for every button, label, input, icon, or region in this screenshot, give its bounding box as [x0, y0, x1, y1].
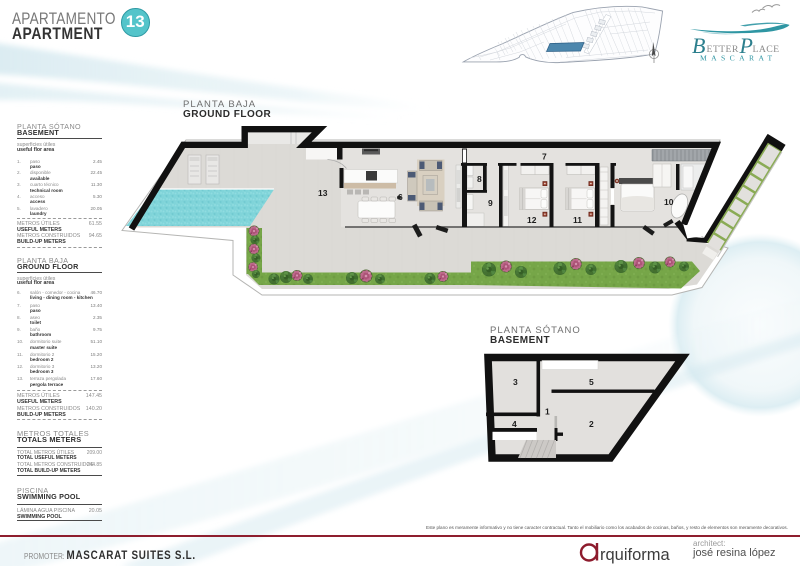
svg-text:8: 8: [477, 174, 482, 184]
svg-text:4: 4: [512, 419, 517, 429]
svg-text:11: 11: [573, 215, 582, 225]
svg-text:10: 10: [664, 197, 674, 207]
svg-text:13: 13: [318, 188, 328, 198]
svg-text:3: 3: [513, 377, 518, 387]
svg-text:9: 9: [488, 198, 493, 208]
svg-text:2: 2: [589, 419, 594, 429]
svg-text:12: 12: [527, 215, 537, 225]
svg-text:rquiforma: rquiforma: [600, 546, 671, 564]
svg-text:7: 7: [542, 152, 547, 162]
svg-text:6: 6: [398, 192, 403, 202]
svg-text:1: 1: [545, 407, 550, 417]
svg-text:MASCARAT: MASCARAT: [700, 54, 777, 63]
svg-text:5: 5: [589, 377, 594, 387]
